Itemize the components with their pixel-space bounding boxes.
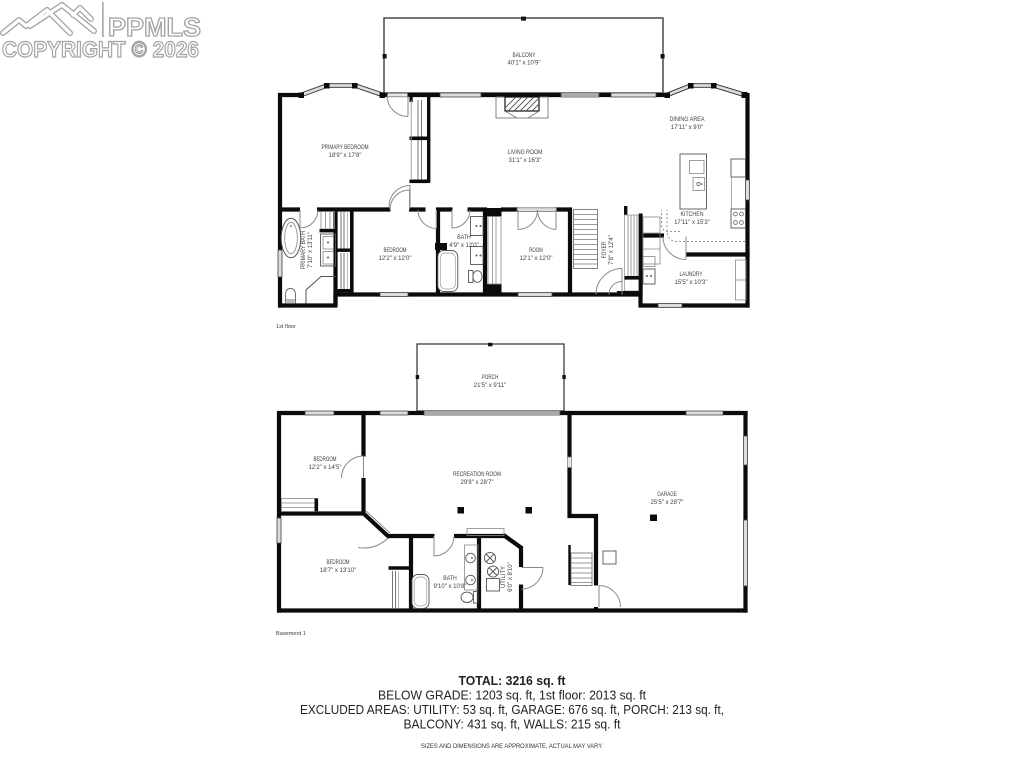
svg-text:15'5" x 10'3": 15'5" x 10'3" <box>675 280 708 286</box>
svg-text:SIZES AND DIMENSIONS ARE APPRO: SIZES AND DIMENSIONS ARE APPROXIMATE, AC… <box>421 743 603 750</box>
svg-text:DINING AREA: DINING AREA <box>670 116 706 123</box>
svg-text:PRIMARY BEDROOM: PRIMARY BEDROOM <box>322 144 369 151</box>
svg-text:BEDROOM: BEDROOM <box>314 456 337 463</box>
svg-text:12'2" x 12'0": 12'2" x 12'0" <box>379 256 412 262</box>
svg-text:4'9" x 12'0": 4'9" x 12'0" <box>449 243 479 249</box>
svg-text:Basement 1: Basement 1 <box>276 631 306 637</box>
svg-text:29'8" x 28'7": 29'8" x 28'7" <box>461 480 494 486</box>
svg-text:FOYER: FOYER <box>601 242 608 259</box>
svg-text:1st floor: 1st floor <box>276 324 296 330</box>
svg-text:40'1" x 10'9": 40'1" x 10'9" <box>508 61 541 67</box>
svg-text:25'5" x 28'7": 25'5" x 28'7" <box>651 500 684 506</box>
svg-text:TOTAL: 3216 sq. ft: TOTAL: 3216 sq. ft <box>459 673 567 688</box>
svg-text:COPYRIGHT © 2026: COPYRIGHT © 2026 <box>2 37 199 62</box>
svg-text:PORCH: PORCH <box>482 374 499 381</box>
svg-text:BALCONY: BALCONY <box>513 52 536 59</box>
svg-text:12'1" x 12'0": 12'1" x 12'0" <box>520 256 553 262</box>
svg-text:7'8" x 12'4": 7'8" x 12'4" <box>609 235 615 265</box>
svg-text:21'5" x 9'11": 21'5" x 9'11" <box>474 383 506 389</box>
svg-text:BEDROOM: BEDROOM <box>327 559 350 566</box>
svg-text:LAUNDRY: LAUNDRY <box>680 271 703 278</box>
svg-text:17'11" x 15'3": 17'11" x 15'3" <box>674 220 710 226</box>
svg-text:BEDROOM: BEDROOM <box>384 247 407 254</box>
svg-text:12'2" x 14'5": 12'2" x 14'5" <box>309 465 342 471</box>
svg-text:ROOM: ROOM <box>529 247 543 254</box>
svg-text:UTILITY: UTILITY <box>500 565 507 588</box>
svg-text:18'7" x 13'10": 18'7" x 13'10" <box>320 568 356 574</box>
svg-text:17'11" x 9'0": 17'11" x 9'0" <box>671 125 703 131</box>
svg-text:KITCHEN: KITCHEN <box>681 211 704 218</box>
svg-text:18'9" x 17'8": 18'9" x 17'8" <box>329 153 362 159</box>
svg-text:BATH: BATH <box>443 575 457 582</box>
svg-text:RECREATION ROOM: RECREATION ROOM <box>453 471 501 478</box>
svg-text:BALCONY: 431 sq. ft, WALLS: 21: BALCONY: 431 sq. ft, WALLS: 215 sq. ft <box>404 717 621 732</box>
svg-text:EXCLUDED AREAS: UTILITY: 53 sq: EXCLUDED AREAS: UTILITY: 53 sq. ft, GARA… <box>300 702 724 717</box>
svg-text:31'1" x 16'3": 31'1" x 16'3" <box>509 158 542 164</box>
svg-text:7'10" x 13'11": 7'10" x 13'11" <box>308 232 314 268</box>
svg-text:6'0" x 8'10": 6'0" x 8'10" <box>508 562 514 592</box>
svg-text:LIVING ROOM: LIVING ROOM <box>508 149 543 156</box>
svg-text:GARAGE: GARAGE <box>657 491 677 498</box>
svg-text:BATH: BATH <box>457 234 471 241</box>
svg-text:9'10" x 10'8": 9'10" x 10'8" <box>434 584 467 590</box>
svg-text:PRIMARY BATH: PRIMARY BATH <box>300 231 307 269</box>
svg-text:BELOW GRADE: 1203 sq. ft, 1st: BELOW GRADE: 1203 sq. ft, 1st floor: 201… <box>378 688 646 703</box>
